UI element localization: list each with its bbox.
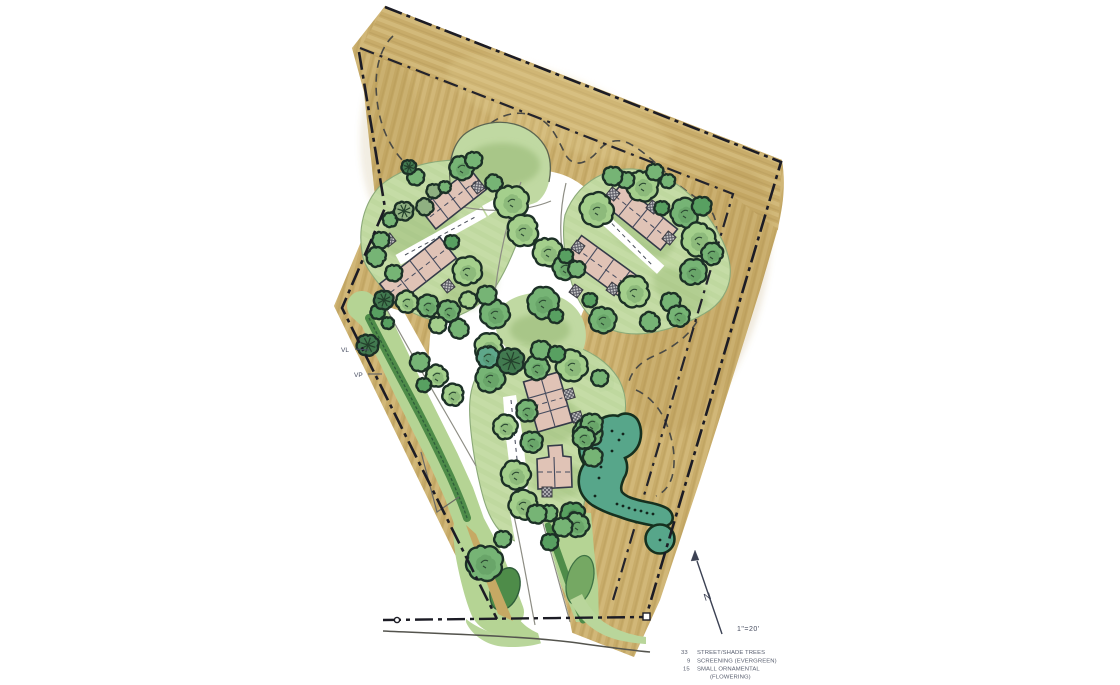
svg-text:9: 9 (687, 659, 690, 665)
svg-text:VL: VL (341, 347, 349, 354)
svg-text:1"=20': 1"=20' (737, 626, 760, 633)
svg-text:33: 33 (681, 650, 688, 656)
svg-text:STREET/SHADE TREES: STREET/SHADE TREES (697, 650, 765, 656)
svg-text:SCREENING (EVERGREEN): SCREENING (EVERGREEN) (697, 659, 777, 665)
svg-text:VP: VP (354, 372, 363, 379)
svg-text:(FLOWERING): (FLOWERING) (710, 675, 751, 681)
svg-text:15: 15 (683, 667, 690, 673)
svg-text:N: N (703, 591, 713, 604)
svg-text:SMALL ORNAMENTAL: SMALL ORNAMENTAL (697, 667, 760, 673)
